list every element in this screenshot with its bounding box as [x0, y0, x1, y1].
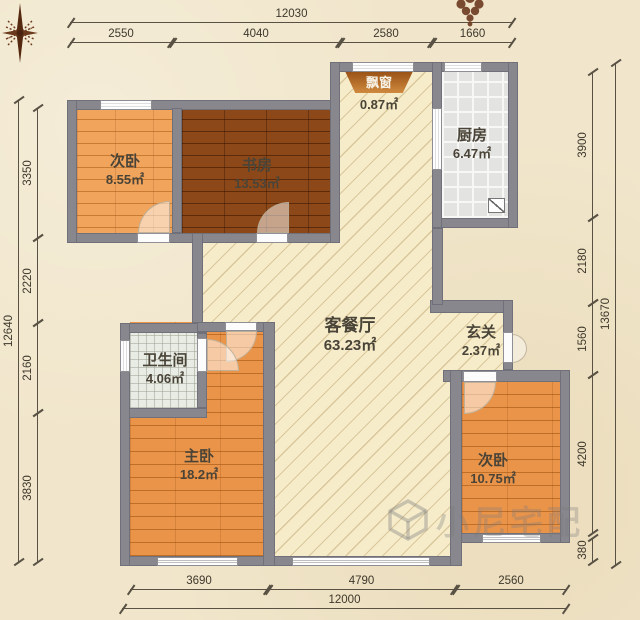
wall [432, 228, 443, 305]
dimension-top-overall: 12030 [70, 22, 513, 23]
dimension-value: 2550 [70, 28, 172, 40]
window [100, 100, 152, 110]
dimension-value: 2580 [340, 28, 432, 40]
floor-plan-canvas: 次卧 8.55㎡ 书房 13.53㎡ 飘窗 0.87㎡ 厨房 6.47㎡ 客餐厅… [0, 0, 640, 620]
dimension-value: 4040 [172, 28, 340, 40]
room-area: 0.87㎡ [346, 94, 412, 113]
room-label-bay-window: 飘窗 [344, 72, 414, 93]
room-label-bedroom-top-left: 次卧 8.55㎡ [88, 152, 162, 188]
floral-ornament-icon [448, 0, 492, 33]
dimension-value: 4200 [577, 441, 589, 467]
wall [330, 62, 340, 243]
dimension-value: 3900 [577, 132, 589, 158]
window [157, 557, 238, 566]
room-area: 4.06㎡ [127, 370, 203, 387]
room-label-bathroom: 卫生间 4.06㎡ [127, 351, 203, 387]
watermark: 小尼宅配 [386, 496, 584, 544]
wall [263, 322, 275, 566]
dimension-value: 2560 [455, 575, 567, 587]
dimension-value: 3690 [130, 575, 268, 587]
dimension-left-segment: 3350 [37, 108, 38, 238]
room-label-bedroom-bottom-right: 次卧 10.75㎡ [450, 451, 536, 487]
dimension-bottom-segment: 3690 [130, 589, 268, 590]
dimension-top-segment: 2550 [70, 42, 172, 43]
dimension-value: 1560 [577, 326, 589, 352]
dimension-value: 12640 [3, 315, 15, 347]
wall [67, 233, 340, 243]
dimension-left-overall: 12640 [18, 100, 19, 562]
room-area: 10.75㎡ [450, 470, 536, 487]
wall [192, 233, 203, 323]
dimension-right-segment: 2180 [592, 218, 593, 303]
dimension-top-segment: 4040 [172, 42, 340, 43]
dimension-left-segment: 2160 [37, 323, 38, 413]
room-label-study: 书房 13.53㎡ [217, 156, 297, 192]
door-panel [256, 233, 288, 243]
dimension-top-segment: 1660 [432, 42, 513, 43]
door-panel [225, 322, 257, 331]
room-name: 书房 [217, 156, 297, 175]
room-area: 8.55㎡ [88, 171, 162, 188]
dimension-right-segment: 380 [592, 538, 593, 562]
dimension-bottom-segment: 4790 [268, 589, 455, 590]
dimension-value: 2180 [577, 248, 589, 274]
cube-logo-icon [386, 498, 430, 542]
room-name: 客餐厅 [305, 315, 395, 336]
dimension-value: 3830 [22, 475, 34, 501]
room-area: 18.2㎡ [160, 466, 238, 483]
room-name: 次卧 [88, 152, 162, 171]
dimension-right-segment: 4200 [592, 375, 593, 533]
window [352, 62, 414, 72]
compass-rose-icon [1, 3, 39, 70]
door-panel [463, 371, 497, 382]
room-label-kitchen: 厨房 6.47㎡ [440, 126, 504, 162]
wall [120, 408, 207, 418]
room-area: 13.53㎡ [217, 175, 297, 192]
room-name: 卫生间 [127, 351, 203, 370]
room-label-master-bedroom: 主卧 18.2㎡ [160, 447, 238, 483]
dimension-value: 3350 [22, 160, 34, 186]
room-name: 次卧 [450, 451, 536, 470]
dimension-value: 2220 [22, 268, 34, 294]
wall [432, 218, 518, 228]
window [292, 557, 430, 566]
dimension-right-overall: 13670 [615, 63, 616, 565]
dimension-left-segment: 3830 [37, 413, 38, 562]
window [444, 62, 482, 72]
dimension-bottom-overall: 12000 [122, 608, 567, 609]
dimension-value: 4790 [268, 575, 455, 587]
room-label-entry: 玄关 2.37㎡ [447, 323, 515, 359]
dimension-value: 2160 [22, 355, 34, 381]
wall [172, 108, 182, 233]
room-name: 主卧 [160, 447, 238, 466]
dimension-top-segment: 2580 [340, 42, 432, 43]
wall [508, 62, 518, 228]
dimension-value: 12000 [122, 594, 567, 606]
dimension-bottom-segment: 2560 [455, 589, 567, 590]
watermark-text: 小尼宅配 [436, 496, 584, 544]
room-name: 厨房 [440, 126, 504, 145]
wall [120, 323, 207, 333]
appliance-icon [488, 198, 505, 213]
room-label-living-dining: 客餐厅 63.23㎡ [305, 315, 395, 355]
room-area: 2.37㎡ [447, 342, 515, 359]
dimension-left-segment: 2220 [37, 238, 38, 323]
wall [67, 100, 77, 243]
dimension-right-segment: 3900 [592, 72, 593, 218]
room-name: 玄关 [447, 323, 515, 342]
room-area: 63.23㎡ [305, 336, 395, 355]
dimension-value: 12030 [70, 8, 513, 20]
dimension-right-segment: 1560 [592, 303, 593, 375]
door-panel [137, 233, 170, 243]
room-area: 6.47㎡ [440, 145, 504, 162]
dimension-value: 13670 [600, 298, 612, 330]
